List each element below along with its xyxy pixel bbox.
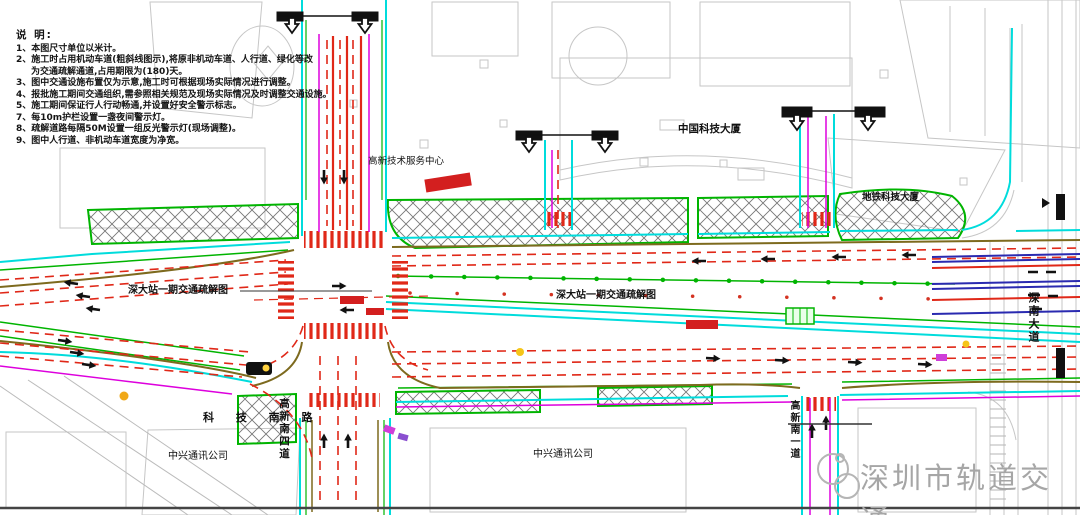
vehicle-icon [397, 433, 408, 441]
signal-dot-icon [963, 341, 970, 348]
road-label-gaoxin-s1: 高新南一道 [786, 400, 801, 505]
metro-navy-layer [932, 254, 1080, 314]
watermark-text: 深圳市轨道交通 [860, 455, 1080, 515]
note-line: 4、报批施工期间交通组织,需参照相关规范及现场实际情况及时调整交通设施。 [16, 90, 332, 102]
road-label-shennan-avenue: 深南大道 [1025, 292, 1041, 392]
edge-marker-bar [1056, 348, 1065, 378]
edge-arrow-icon [1042, 198, 1050, 208]
note-line: 2、施工时占用机动车道(粗斜线图示),将原非机动车道、人行道、绿化等改 [16, 55, 332, 67]
bus-stop-sign-icon [246, 362, 272, 375]
signal-dot-icon [516, 348, 524, 356]
note-line: 3、图中交通设施布置仅为示意,施工时可根据现场实际情况进行调整。 [16, 78, 332, 90]
note-line: 为交通疏解通道,占用期限为(180)天。 [16, 67, 332, 79]
building-label-metro-tech: 地铁科技大厦 [862, 189, 919, 203]
edge-marker-bar [1056, 194, 1065, 220]
road-label-gaoxin-s4: 高新南四道 [277, 398, 292, 513]
traffic-diversion-plan: 说 明: 1、本图尺寸单位以米计。 2、施工时占用机动车道(粗斜线图示),将原非… [0, 0, 1080, 515]
note-line: 8、疏解道路每隔50M设置一组反光警示灯(现场调整)。 [16, 124, 332, 136]
vehicle-icon [936, 354, 947, 361]
notes-heading: 说 明: [16, 30, 332, 42]
note-line: 1、本图尺寸单位以米计。 [16, 44, 332, 56]
building-label-hi-tech-center: 高新技术服务中心 [368, 153, 444, 167]
note-line: 5、施工期间保证行人行动畅通,并设置好安全警示标志。 [16, 101, 332, 113]
vehicle-icon [383, 424, 396, 434]
plan-title-label-center: 深大站一期交通疏解图 [556, 286, 656, 301]
signal-dot-icon [120, 392, 129, 401]
notes-block: 说 明: 1、本图尺寸单位以米计。 2、施工时占用机动车道(粗斜线图示),将原非… [16, 30, 332, 147]
road-label-keji-south: 科 技 南 路 [203, 409, 322, 425]
building-label-zte-left: 中兴通讯公司 [168, 447, 228, 462]
note-line: 7、每10m护栏设置一盏夜间警示灯。 [16, 113, 332, 125]
bus-shelter-icon [786, 308, 814, 324]
building-label-zte-center: 中兴通讯公司 [533, 445, 593, 460]
building-label-china-tech: 中国科技大厦 [678, 121, 741, 136]
note-line: 9、图中人行道、非机动车道宽度为净宽。 [16, 136, 332, 148]
plan-title-label-left: 深大站一期交通疏解图 [128, 281, 228, 296]
